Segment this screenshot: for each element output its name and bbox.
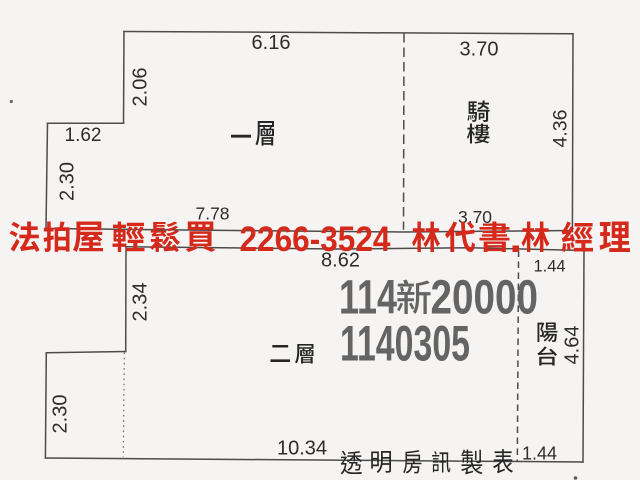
svg-text:4.64: 4.64 bbox=[562, 326, 584, 365]
svg-text:1.44: 1.44 bbox=[533, 258, 565, 276]
svg-text:7.78: 7.78 bbox=[195, 204, 229, 224]
svg-text:2.06: 2.06 bbox=[130, 68, 152, 107]
svg-text:1.44: 1.44 bbox=[522, 444, 557, 464]
svg-text:2.30: 2.30 bbox=[50, 395, 72, 434]
svg-text:10.34: 10.34 bbox=[277, 438, 327, 460]
svg-text:3.70: 3.70 bbox=[460, 39, 499, 61]
svg-text:1.62: 1.62 bbox=[65, 125, 102, 146]
svg-text:4.36: 4.36 bbox=[550, 110, 572, 148]
svg-text:6.16: 6.16 bbox=[252, 32, 291, 54]
svg-text:2.34: 2.34 bbox=[130, 283, 152, 322]
svg-text:2.30: 2.30 bbox=[57, 162, 79, 201]
svg-text:1140305: 1140305 bbox=[340, 316, 470, 372]
svg-text:2266-3524: 2266-3524 bbox=[240, 219, 391, 259]
